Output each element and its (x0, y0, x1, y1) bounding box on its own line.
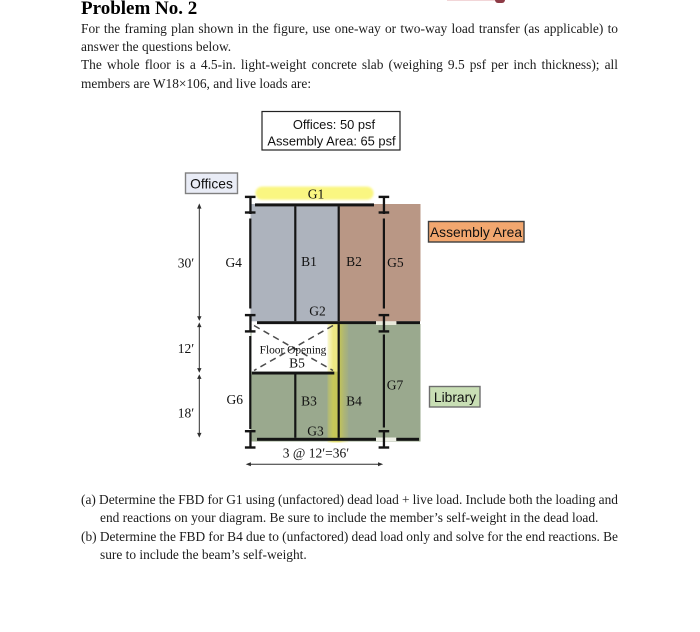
svg-text:18′: 18′ (178, 406, 195, 421)
svg-text:G2: G2 (309, 304, 326, 319)
svg-text:Floor Opening: Floor Opening (260, 344, 327, 356)
svg-text:G6: G6 (227, 392, 244, 407)
svg-text:B5: B5 (289, 356, 305, 371)
svg-text:Assembly Area: Assembly Area (430, 225, 522, 240)
svg-text:B2: B2 (346, 254, 362, 269)
svg-text:Assembly Area: 65 psf: Assembly Area: 65 psf (267, 134, 396, 149)
svg-text:B4: B4 (346, 394, 362, 409)
svg-text:B3: B3 (301, 394, 317, 409)
svg-text:G7: G7 (387, 378, 404, 393)
svg-text:G3: G3 (307, 424, 324, 439)
svg-text:12′: 12′ (178, 341, 195, 356)
svg-text:Offices: 50 psf: Offices: 50 psf (293, 117, 376, 132)
svg-text:30′: 30′ (178, 256, 195, 271)
svg-text:G5: G5 (387, 255, 404, 270)
svg-text:Offices: Offices (190, 177, 233, 192)
svg-text:G4: G4 (225, 255, 242, 270)
svg-text:3 @ 12′=36′: 3 @ 12′=36′ (283, 445, 349, 460)
svg-text:B1: B1 (301, 254, 317, 269)
svg-text:Library: Library (434, 390, 476, 405)
svg-text:G1: G1 (308, 187, 325, 202)
